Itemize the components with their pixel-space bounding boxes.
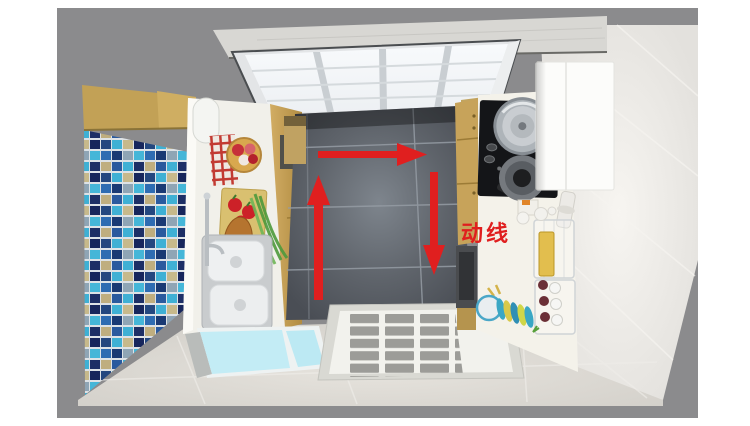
jar <box>535 208 548 221</box>
yellow-cutting-board <box>539 232 554 276</box>
wood-cabinets-right <box>455 99 478 330</box>
range-hood-cabinet <box>536 62 614 190</box>
tan-wall-panel <box>284 116 306 164</box>
flow-label: 动线 <box>461 224 511 246</box>
kitchen-photo: 动线 <box>57 8 698 418</box>
kitchen-render <box>57 8 698 418</box>
fruit-bowl <box>227 138 261 172</box>
dark-tile-floor <box>286 106 472 320</box>
sink <box>202 235 272 330</box>
bottle-rack <box>533 280 575 334</box>
page-background: 动线 <box>0 0 750 426</box>
